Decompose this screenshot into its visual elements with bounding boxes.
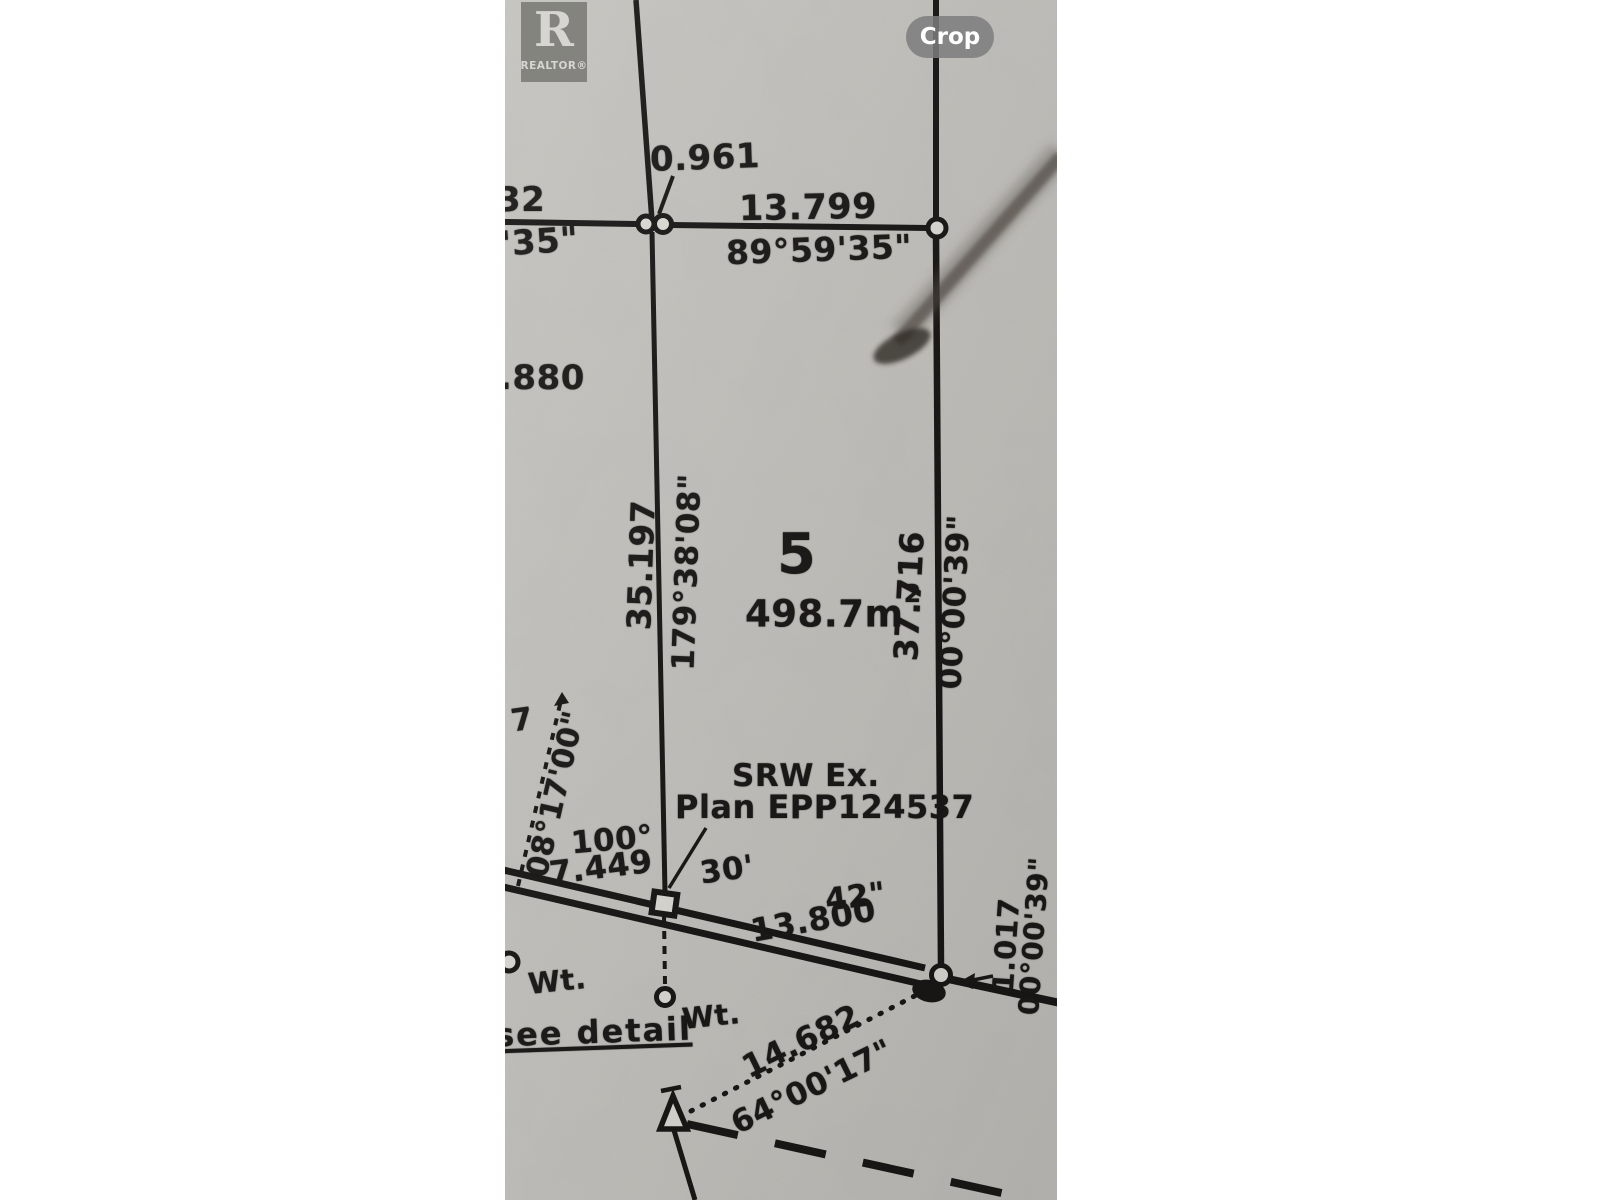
see-detail-note: see detail xyxy=(505,1010,693,1055)
monument-circle-top-left-a xyxy=(638,216,654,232)
west-bearing-label: 179°38'08" xyxy=(666,473,709,671)
offset-dimension-label: 0.961 xyxy=(649,136,760,180)
realtor-brand-text: REALTOR® xyxy=(521,60,588,72)
top-distance-label: 13.799 xyxy=(739,187,878,229)
witness-label-left: Wt. xyxy=(526,961,588,1001)
witness-monument-circle-mid xyxy=(657,989,674,1006)
corner-angle-min-label: 30' xyxy=(698,848,757,891)
monument-circle-top-right xyxy=(928,219,946,237)
witness-monument-circle-left xyxy=(505,953,518,971)
west-distance-label: 35.197 xyxy=(619,499,663,631)
srw-note-line2: Plan EPP124537 xyxy=(675,788,974,826)
left-partial-bearing-label: '35" xyxy=(505,219,580,264)
left-partial-distance-label: 32 xyxy=(505,180,545,220)
monument-circle-top-left-b xyxy=(655,216,672,233)
lot-number-label: 5 xyxy=(777,522,816,587)
survey-plan-photo: 0.961 13.799 89°59'35" 32 '35" .880 7 35… xyxy=(505,0,1057,1200)
monument-circle-bottom-right xyxy=(932,966,951,985)
lot-area-exponent: 2 xyxy=(904,579,922,608)
realtor-watermark: R REALTOR® xyxy=(521,2,587,82)
left-partial-dimension-label: .880 xyxy=(505,358,585,398)
crop-button[interactable]: Crop xyxy=(906,16,994,58)
lot-area-value: 498.7m xyxy=(745,592,904,635)
screenshot-stage: 0.961 13.799 89°59'35" 32 '35" .880 7 35… xyxy=(0,0,1600,1200)
realtor-r-icon: R xyxy=(534,2,574,58)
lot-area-label: 498.7m2 xyxy=(745,590,922,635)
top-bearing-label: 89°59'35" xyxy=(725,227,912,272)
monument-square-road-corner xyxy=(652,892,678,916)
